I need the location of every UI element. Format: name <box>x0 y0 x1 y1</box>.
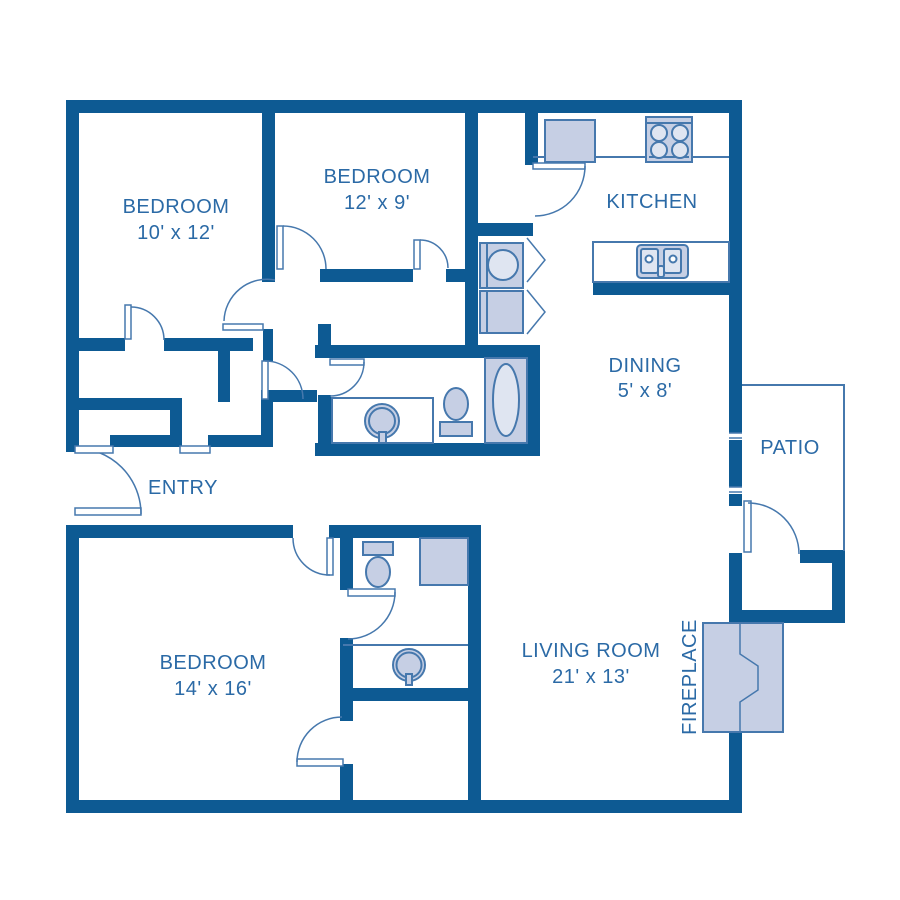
shower-icon <box>420 538 468 585</box>
fireplace-icon <box>703 623 783 732</box>
bifold-doors-icon <box>527 238 545 282</box>
door-leaf <box>125 305 131 339</box>
wall-segment <box>729 494 742 506</box>
second-toilet-icon <box>363 542 393 587</box>
room-dims-bedroom-top-middle: 12' x 9' <box>344 192 410 214</box>
wall-segment <box>729 440 742 487</box>
drain <box>646 256 653 263</box>
wall-segment <box>742 610 845 623</box>
door-leaf <box>327 538 333 575</box>
door-leaf <box>297 759 343 766</box>
toilet-tank <box>440 422 472 436</box>
wall-segment <box>329 525 481 538</box>
door-swing-arc <box>297 717 342 762</box>
room-label-patio: PATIO <box>760 437 820 459</box>
wall-segment <box>66 398 170 410</box>
wall-segment <box>318 324 331 348</box>
wall-segment <box>729 553 742 623</box>
room-label-bedroom-top-left: BEDROOM <box>123 196 230 218</box>
faucet <box>379 432 386 443</box>
wall-segment <box>468 538 481 813</box>
room-dims-living-room: 21' x 13' <box>552 666 630 688</box>
faucet <box>658 266 664 277</box>
wall-segment <box>263 329 273 361</box>
door-swing-arc <box>283 226 326 269</box>
closet-opening-sill <box>180 446 210 453</box>
door-leaf <box>348 589 395 596</box>
patio-door-swing-arc <box>748 503 799 554</box>
door-swing-arc <box>131 307 164 340</box>
door-leaf <box>414 240 420 269</box>
room-label-living-room: LIVING ROOM <box>522 640 661 662</box>
bathtub-icon <box>485 358 527 443</box>
wall-segment <box>320 269 413 282</box>
wall-segment <box>66 525 79 813</box>
room-label-bedroom-bottom: BEDROOM <box>160 652 267 674</box>
wall-segment <box>66 338 125 351</box>
room-label-entry: ENTRY <box>148 477 218 499</box>
patio-outline <box>742 385 844 551</box>
bifold-doors-icon <box>527 290 545 334</box>
closet-opening-sill <box>223 324 263 330</box>
wall-segment <box>470 223 533 236</box>
wall-segment <box>66 525 293 538</box>
wall-segment <box>340 538 353 590</box>
windows-and-counters <box>332 157 844 645</box>
toilet-tank <box>363 542 393 555</box>
wall-segment <box>110 435 172 447</box>
floor-plan: BEDROOM 10' x 12' BEDROOM 12' x 9' KITCH… <box>0 0 900 900</box>
room-dims-bedroom-bottom: 14' x 16' <box>174 678 252 700</box>
floor-plan-page: BEDROOM 10' x 12' BEDROOM 12' x 9' KITCH… <box>0 0 900 900</box>
toilet-bowl <box>366 557 390 587</box>
wall-segment <box>446 269 478 282</box>
second-vanity-sink-icon <box>393 649 425 685</box>
door-swing-arc <box>224 279 275 321</box>
entry-door-leaf <box>75 508 141 515</box>
door-swing-arc <box>330 362 364 396</box>
door-swing-arc <box>348 592 395 639</box>
burner <box>672 142 688 158</box>
wall-segment <box>315 345 540 358</box>
burner <box>651 125 667 141</box>
door-leaf <box>277 226 283 269</box>
burner <box>672 125 688 141</box>
door-swing-arc <box>420 240 448 268</box>
tub-basin <box>493 364 519 436</box>
room-label-fireplace: FIREPLACE <box>679 619 701 735</box>
wall-segment <box>262 113 275 282</box>
room-dims-bedroom-top-left: 10' x 12' <box>137 222 215 244</box>
wall-segment <box>729 113 742 433</box>
door-leaf <box>330 359 364 365</box>
wall-segment <box>66 100 742 113</box>
washer-drum <box>488 250 518 280</box>
window-icon <box>729 433 742 438</box>
window-icon <box>729 487 742 492</box>
wall-segment <box>593 282 742 295</box>
fireplace-body <box>703 623 783 732</box>
wall-segment <box>340 688 481 701</box>
wall-segment <box>164 338 253 351</box>
wall-segment <box>315 443 540 456</box>
toilet-bowl <box>444 388 468 420</box>
closet-opening-sill <box>75 446 113 453</box>
room-label-bedroom-top-middle: BEDROOM <box>324 166 431 188</box>
wall-segment <box>729 732 742 800</box>
drain <box>670 256 677 263</box>
dryer-icon <box>480 291 523 333</box>
refrigerator-icon <box>545 120 595 162</box>
room-label-kitchen: KITCHEN <box>606 191 697 213</box>
door-leaf <box>262 361 268 399</box>
sink-basin <box>369 408 395 434</box>
door-leaf <box>533 163 585 169</box>
room-dims-dining: 5' x 8' <box>618 380 673 402</box>
door-swing-arc <box>535 166 585 216</box>
washer-icon <box>480 243 523 288</box>
wall-segment <box>218 350 230 402</box>
entry-door-swing-arc <box>75 448 141 514</box>
wall-segment <box>527 358 540 443</box>
toilet-icon <box>440 388 472 436</box>
room-label-dining: DINING <box>609 355 682 377</box>
wall-segment <box>465 113 478 269</box>
wall-segment <box>66 800 742 813</box>
faucet <box>406 674 412 685</box>
stove-icon <box>646 117 692 162</box>
burner <box>651 142 667 158</box>
wall-segment <box>340 764 353 813</box>
wall-segment <box>340 701 353 721</box>
door-swing-arc <box>293 538 330 575</box>
kitchen-double-sink-icon <box>637 245 688 278</box>
patio-door-leaf <box>744 501 751 552</box>
